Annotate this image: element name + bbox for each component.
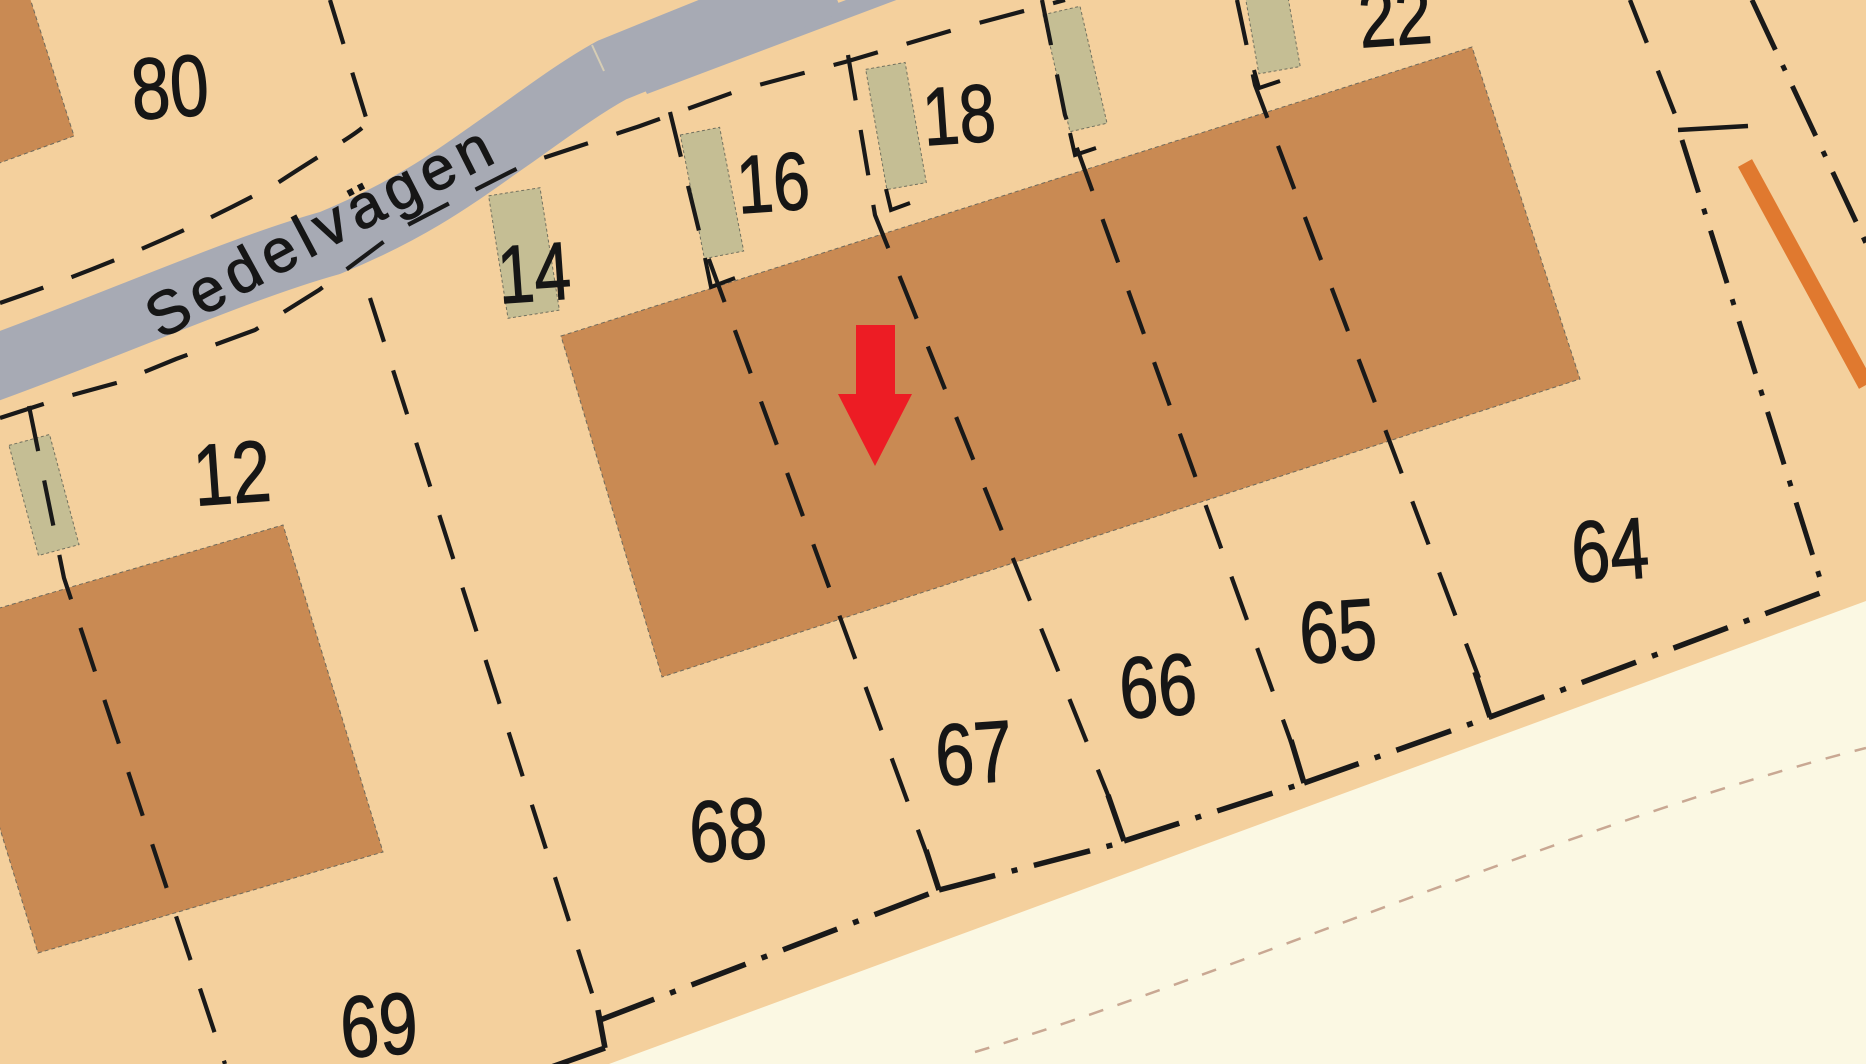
svg-text:22: 22 xyxy=(1355,0,1434,65)
svg-text:66: 66 xyxy=(1116,635,1200,737)
svg-text:67: 67 xyxy=(932,702,1016,804)
svg-text:18: 18 xyxy=(919,67,998,164)
svg-text:12: 12 xyxy=(190,422,274,524)
svg-text:14: 14 xyxy=(494,225,573,322)
svg-text:80: 80 xyxy=(128,36,212,138)
svg-text:64: 64 xyxy=(1568,499,1652,601)
svg-text:16: 16 xyxy=(733,135,812,232)
svg-text:69: 69 xyxy=(337,974,421,1064)
svg-text:68: 68 xyxy=(686,779,770,881)
svg-text:65: 65 xyxy=(1296,580,1380,682)
